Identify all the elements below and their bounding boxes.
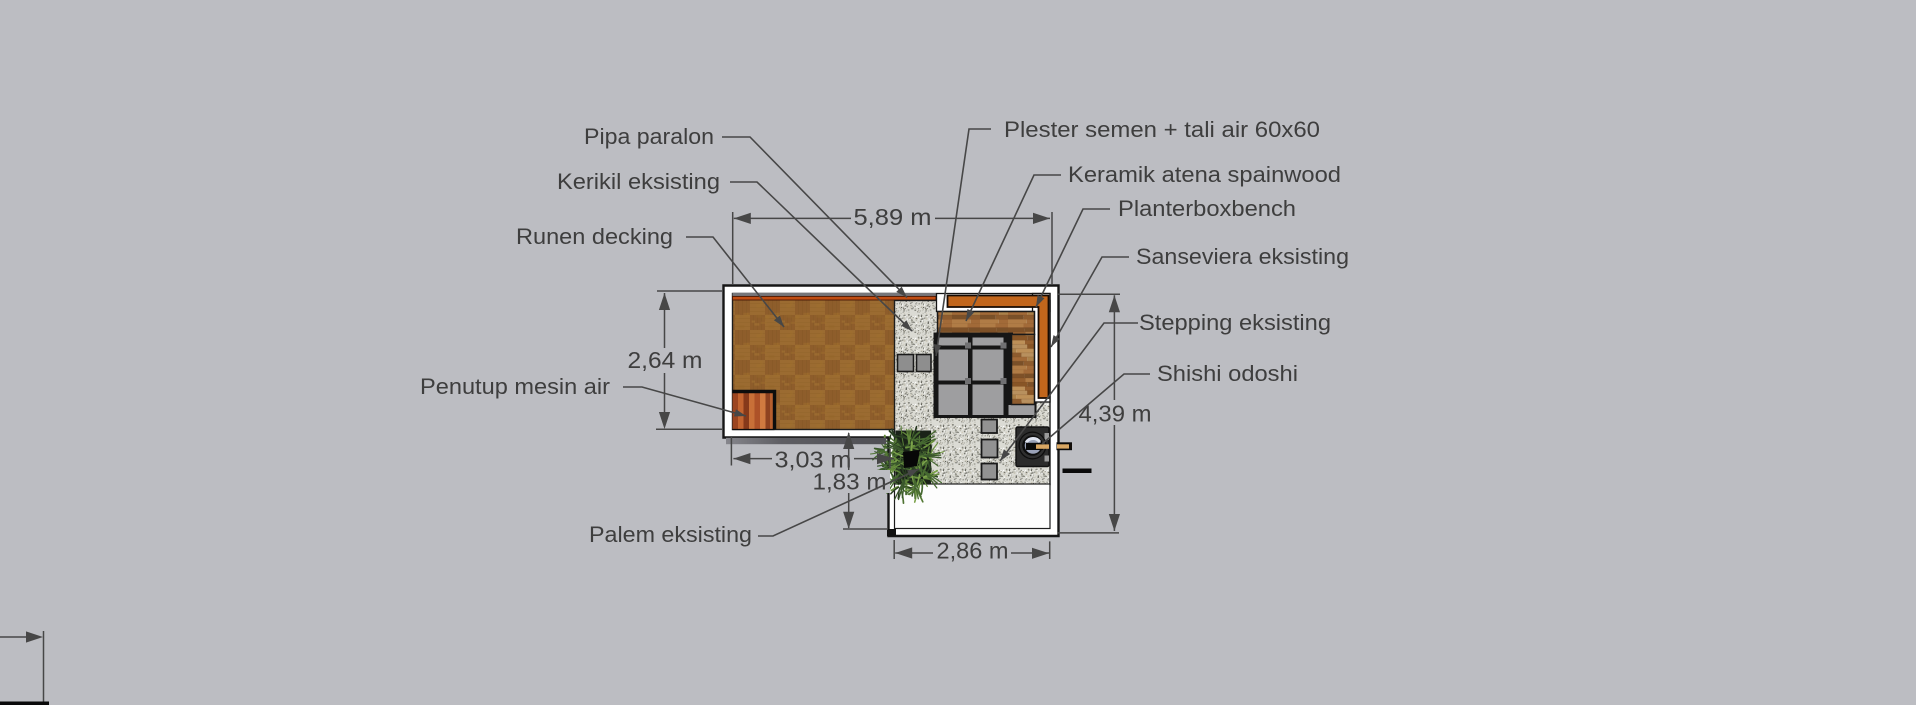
svg-text:Sanseviera eksisting: Sanseviera eksisting bbox=[1136, 244, 1349, 269]
svg-text:Pipa paralon: Pipa paralon bbox=[584, 124, 714, 149]
svg-text:Stepping eksisting: Stepping eksisting bbox=[1139, 310, 1331, 335]
svg-text:Runen decking: Runen decking bbox=[516, 224, 673, 249]
svg-text:Planterboxbench: Planterboxbench bbox=[1118, 196, 1296, 221]
svg-text:Keramik atena spainwood: Keramik atena spainwood bbox=[1068, 162, 1341, 187]
svg-text:5,89 m: 5,89 m bbox=[854, 204, 932, 230]
svg-text:Penutup mesin air: Penutup mesin air bbox=[420, 374, 610, 399]
svg-text:Shishi odoshi: Shishi odoshi bbox=[1157, 361, 1298, 386]
svg-text:Palem eksisting: Palem eksisting bbox=[589, 522, 752, 547]
svg-text:2,64 m: 2,64 m bbox=[628, 347, 703, 373]
svg-text:2,86 m: 2,86 m bbox=[937, 538, 1009, 564]
svg-text:Plester semen + tali air 60x60: Plester semen + tali air 60x60 bbox=[1004, 117, 1320, 142]
svg-text:1,83 m: 1,83 m bbox=[813, 469, 887, 495]
svg-text:Kerikil eksisting: Kerikil eksisting bbox=[557, 169, 720, 194]
